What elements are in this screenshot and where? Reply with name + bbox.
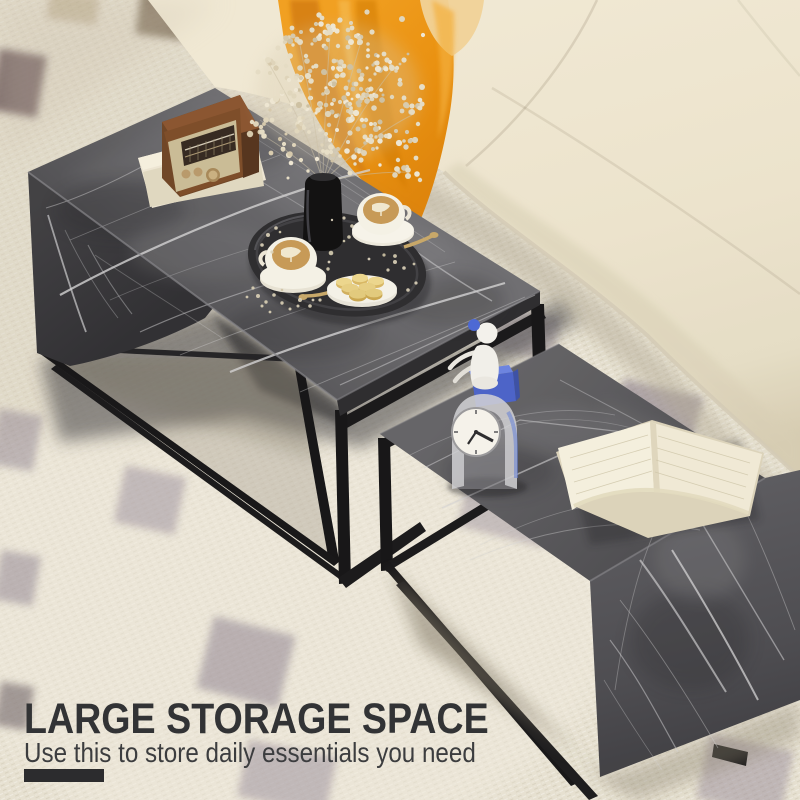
svg-text:LARGE STORAGE SPACE: LARGE STORAGE SPACE (24, 694, 489, 743)
svg-text:Use this to store daily essent: Use this to store daily essentials you n… (24, 739, 476, 769)
